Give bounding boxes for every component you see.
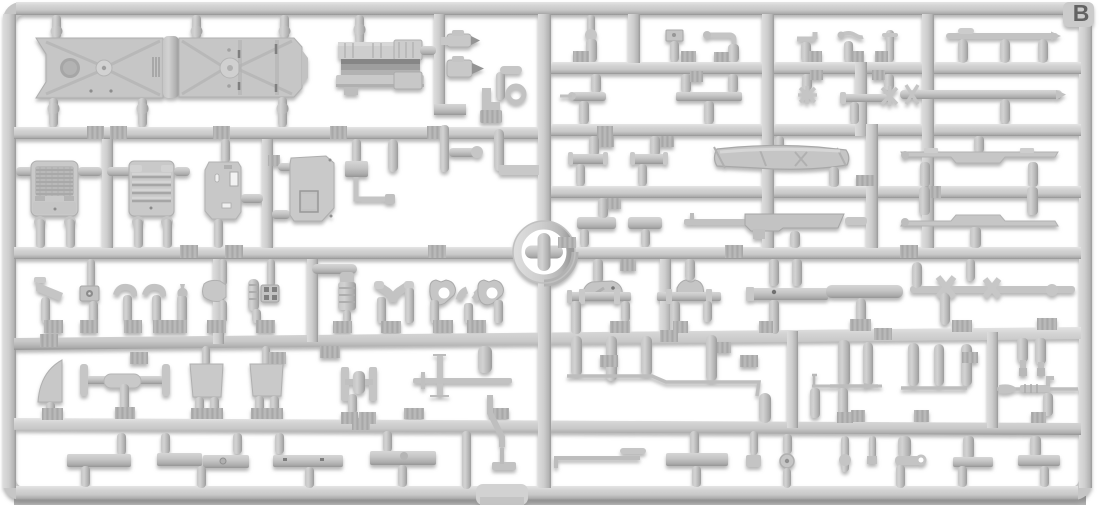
svg-text:B: B bbox=[1073, 0, 1090, 26]
